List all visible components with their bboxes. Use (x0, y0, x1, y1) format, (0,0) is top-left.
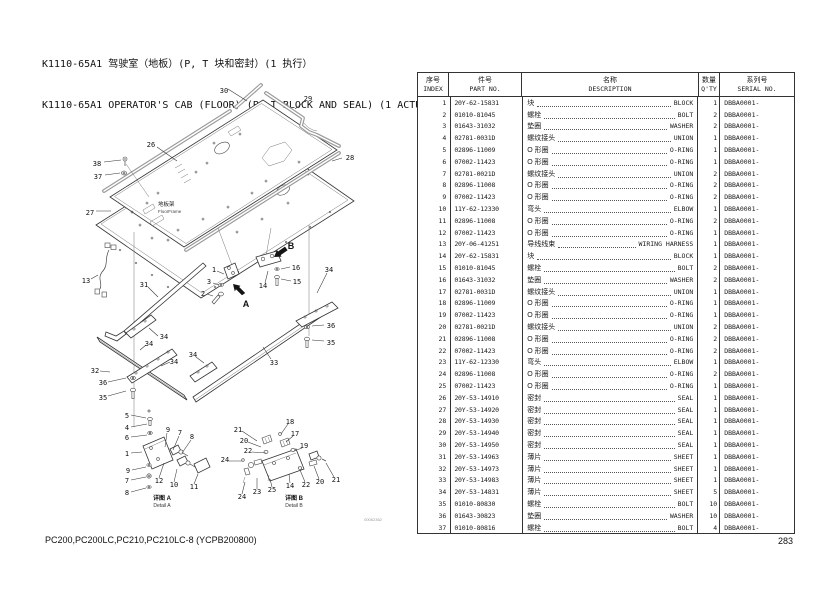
cell-description: 密封SEAL (523, 427, 698, 439)
cell-qty: 1 (698, 463, 720, 475)
cell-description: 密封SEAL (523, 392, 698, 404)
callout-35: 35 (99, 394, 107, 402)
cell-index: 32 (418, 463, 451, 475)
cell-serial: DBBA0001- (720, 262, 794, 274)
cell-qty: 1 (698, 392, 720, 404)
callout-30: 30 (220, 87, 228, 95)
parts-catalog-page: K1110-65A1 驾驶室（地板）(P, T 块和密封）(1 执行） K111… (0, 0, 840, 594)
cell-part-no: 01643-31032 (451, 274, 523, 286)
table-row: 502896-11009O 形圈O-RING1DBBA0001- (418, 144, 794, 156)
detail-b-caption-zh: 详图 B (285, 494, 304, 502)
cell-index: 3 (418, 121, 451, 133)
cell-serial: DBBA0001- (720, 156, 794, 168)
cell-index: 35 (418, 498, 451, 510)
cell-description: 密封SEAL (523, 416, 698, 428)
cell-description: 块BLOCK (523, 250, 698, 262)
cell-description: 块BLOCK (523, 97, 698, 109)
callout-14: 14 (286, 482, 294, 490)
callout-9: 9 (166, 426, 170, 434)
cell-index: 17 (418, 286, 451, 298)
callout-12: 12 (155, 477, 163, 485)
cell-qty: 5 (698, 486, 720, 498)
cell-index: 26 (418, 392, 451, 404)
cell-qty: 1 (698, 427, 720, 439)
callout-5: 5 (125, 412, 129, 420)
cell-serial: DBBA0001- (720, 451, 794, 463)
cell-qty: 2 (698, 191, 720, 203)
cell-serial: DBBA0001- (720, 392, 794, 404)
cell-description: 垫圈WASHER (523, 510, 698, 522)
cell-part-no: 20Y-53-14930 (451, 416, 523, 428)
callout-21: 21 (234, 426, 242, 434)
cell-qty: 2 (698, 321, 720, 333)
cell-index: 20 (418, 321, 451, 333)
cell-part-no: 20Y-53-14920 (451, 404, 523, 416)
cell-part-no: 01643-31032 (451, 121, 523, 133)
callout-18: 18 (286, 418, 294, 426)
callout-36: 36 (327, 322, 335, 330)
callout-15: 15 (293, 278, 301, 286)
cell-serial: DBBA0001- (720, 427, 794, 439)
cell-description: O 形圈O-RING (523, 215, 698, 227)
cell-index: 29 (418, 427, 451, 439)
cell-description: O 形圈O-RING (523, 333, 698, 345)
cell-qty: 2 (698, 180, 720, 192)
table-row: 1601643-31032垫圈WASHER2DBBA0001- (418, 274, 794, 286)
header-part-no: 件号 PART NO. (449, 73, 522, 96)
callout-22: 22 (244, 447, 252, 455)
table-row: 702781-0021D螺纹接头UNION2DBBA0001- (418, 168, 794, 180)
cell-part-no: 20Y-53-14983 (451, 475, 523, 487)
cell-part-no: 02896-11009 (451, 298, 523, 310)
cell-index: 34 (418, 486, 451, 498)
cell-qty: 1 (698, 298, 720, 310)
cell-description: O 形圈O-RING (523, 380, 698, 392)
cell-description: 弯头ELBOW (523, 357, 698, 369)
cell-qty: 1 (698, 97, 720, 109)
table-row: 1501010-81045螺栓BOLT2DBBA0001- (418, 262, 794, 274)
cell-serial: DBBA0001- (720, 132, 794, 144)
cell-part-no: 02896-11008 (451, 368, 523, 380)
cell-qty: 1 (698, 357, 720, 369)
cell-qty: 4 (698, 522, 720, 534)
cell-description: 垫圈WASHER (523, 274, 698, 286)
table-row: 3120Y-53-14963薄片SHEET1DBBA0001- (418, 451, 794, 463)
callout-25: 25 (268, 486, 276, 494)
page-number: 283 (778, 536, 793, 546)
table-row: 2002781-0021D螺纹接头UNION2DBBA0001- (418, 321, 794, 333)
cell-index: 14 (418, 250, 451, 262)
cell-serial: DBBA0001- (720, 203, 794, 215)
callout-29: 29 (304, 95, 312, 103)
table-row: 1207002-11423O 形圈O-RING1DBBA0001- (418, 227, 794, 239)
callout-8: 8 (190, 433, 194, 441)
cell-serial: DBBA0001- (720, 215, 794, 227)
callout-23: 23 (253, 488, 261, 496)
detail-b-caption-en: Detail B (285, 503, 303, 509)
callout-6: 6 (125, 434, 129, 442)
cell-part-no: 02781-0021D (451, 168, 523, 180)
cell-serial: DBBA0001- (720, 144, 794, 156)
table-row: 802896-11008O 形圈O-RING2DBBA0001- (418, 180, 794, 192)
cell-index: 22 (418, 345, 451, 357)
cell-part-no: 02896-11008 (451, 215, 523, 227)
callout-26: 26 (147, 141, 155, 149)
callout-24: 24 (238, 493, 246, 501)
cell-part-no: 20Y-53-14973 (451, 463, 523, 475)
cell-description: 薄片SHEET (523, 451, 698, 463)
cell-qty: 1 (698, 132, 720, 144)
cell-serial: DBBA0001- (720, 463, 794, 475)
cell-part-no: 02781-0031D (451, 286, 523, 298)
cell-description: 螺纹接头UNION (523, 286, 698, 298)
cell-qty: 1 (698, 416, 720, 428)
cell-description: O 形圈O-RING (523, 298, 698, 310)
cell-index: 24 (418, 368, 451, 380)
wiring-harness (95, 243, 116, 297)
floor-frame-label-en: FloorFrame (158, 209, 182, 214)
callout-7: 7 (178, 429, 182, 437)
cell-part-no: 07002-11423 (451, 156, 523, 168)
table-row: 3320Y-53-14983薄片SHEET1DBBA0001- (418, 475, 794, 487)
callout-34: 34 (170, 358, 178, 366)
table-row: 3220Y-53-14973薄片SHEET1DBBA0001- (418, 463, 794, 475)
cell-part-no: 01010-81045 (451, 109, 523, 121)
cell-serial: DBBA0001- (720, 498, 794, 510)
parts-table-header: 序号 INDEX 件号 PART NO. 名称 DESCRIPTION 数量 Q… (418, 73, 794, 97)
header-description: 名称 DESCRIPTION (522, 73, 699, 96)
callout-11: 11 (190, 483, 198, 491)
cell-serial: DBBA0001- (720, 510, 794, 522)
cell-serial: DBBA0001- (720, 191, 794, 203)
cell-qty: 1 (698, 203, 720, 215)
cell-index: 25 (418, 380, 451, 392)
cell-part-no: 02896-11008 (451, 333, 523, 345)
callout-20: 20 (316, 478, 324, 486)
cell-serial: DBBA0001- (720, 109, 794, 121)
cell-part-no: 20Y-62-15831 (451, 250, 523, 262)
callout-21: 21 (332, 476, 340, 484)
callout-31: 31 (140, 281, 148, 289)
cell-serial: DBBA0001- (720, 97, 794, 109)
callout-3: 3 (207, 278, 211, 286)
cell-index: 7 (418, 168, 451, 180)
callout-14: 14 (259, 282, 267, 290)
cell-serial: DBBA0001- (720, 475, 794, 487)
table-row: 2207002-11423O 形圈O-RING2DBBA0001- (418, 345, 794, 357)
cell-serial: DBBA0001- (720, 522, 794, 534)
cell-description: 螺栓BOLT (523, 522, 698, 534)
cell-part-no: 07002-11423 (451, 309, 523, 321)
cell-description: 螺纹接头UNION (523, 321, 698, 333)
callout-34: 34 (145, 340, 153, 348)
callout-4: 4 (125, 424, 129, 432)
cell-description: O 形圈O-RING (523, 144, 698, 156)
cell-index: 15 (418, 262, 451, 274)
table-row: 3420Y-53-14831薄片SHEET5DBBA0001- (418, 486, 794, 498)
table-row: 607002-11423O 形圈O-RING1DBBA0001- (418, 156, 794, 168)
callout-22: 22 (302, 481, 310, 489)
cell-description: 螺纹接头UNION (523, 132, 698, 144)
cell-serial: DBBA0001- (720, 168, 794, 180)
cell-description: O 形圈O-RING (523, 227, 698, 239)
cell-description: 垫圈WASHER (523, 121, 698, 133)
callout-34: 34 (189, 351, 197, 359)
table-row: 2402896-11008O 形圈O-RING2DBBA0001- (418, 368, 794, 380)
cell-description: O 形圈O-RING (523, 345, 698, 357)
cell-qty: 1 (698, 380, 720, 392)
cell-part-no: 02781-0021D (451, 321, 523, 333)
cell-index: 30 (418, 439, 451, 451)
cell-qty: 2 (698, 368, 720, 380)
table-row: 3701010-80816螺栓BOLT4DBBA0001- (418, 522, 794, 534)
callout-35: 35 (327, 339, 335, 347)
table-row: 2102896-11008O 形圈O-RING2DBBA0001- (418, 333, 794, 345)
cell-part-no: 20Y-53-14831 (451, 486, 523, 498)
cell-index: 9 (418, 191, 451, 203)
table-row: 2620Y-53-14910密封SEAL1DBBA0001- (418, 392, 794, 404)
table-row: 2507002-11423O 形圈O-RING1DBBA0001- (418, 380, 794, 392)
cell-description: 螺栓BOLT (523, 262, 698, 274)
cell-index: 36 (418, 510, 451, 522)
detail-a-caption-en: Detail A (153, 503, 171, 509)
cell-serial: DBBA0001- (720, 309, 794, 321)
callout-10: 10 (170, 481, 178, 489)
callout-32: 32 (91, 367, 99, 375)
table-row: 907002-11423O 形圈O-RING2DBBA0001- (418, 191, 794, 203)
table-row: 201010-81045螺栓BOLT2DBBA0001- (418, 109, 794, 121)
exploded-parts-diagram: 地板架 FloorFrame 详图 A Detail A 详图 B Detail… (0, 0, 420, 594)
cell-part-no: 07002-11423 (451, 380, 523, 392)
floor-frame-label-zh: 地板架 (158, 200, 175, 208)
table-row: 2920Y-53-14940密封SEAL1DBBA0001- (418, 427, 794, 439)
cell-description: 密封SEAL (523, 404, 698, 416)
callout-9: 9 (126, 467, 130, 475)
cell-serial: DBBA0001- (720, 250, 794, 262)
applicable-models: PC200,PC200LC,PC210,PC210LC-8 (YCPB20080… (45, 535, 257, 545)
callout-17: 17 (291, 430, 299, 438)
cell-qty: 1 (698, 239, 720, 251)
cell-serial: DBBA0001- (720, 439, 794, 451)
cell-part-no: 20Y-53-14910 (451, 392, 523, 404)
cell-index: 11 (418, 215, 451, 227)
cell-index: 28 (418, 416, 451, 428)
cell-serial: DBBA0001- (720, 345, 794, 357)
detail-a-caption-zh: 详图 A (153, 494, 172, 502)
cell-description: 导线线束WIRING HARNESS (523, 239, 698, 251)
rail-31 (105, 263, 206, 341)
cell-index: 19 (418, 309, 451, 321)
cell-part-no: 01010-80830 (451, 498, 523, 510)
parts-table: 序号 INDEX 件号 PART NO. 名称 DESCRIPTION 数量 Q… (417, 72, 795, 534)
cell-part-no: 02781-0031D (451, 132, 523, 144)
cell-index: 27 (418, 404, 451, 416)
cell-qty: 2 (698, 121, 720, 133)
cell-qty: 2 (698, 262, 720, 274)
callout-24: 24 (221, 456, 229, 464)
cell-description: O 形圈O-RING (523, 191, 698, 203)
cell-part-no: 07002-11423 (451, 227, 523, 239)
cell-qty: 1 (698, 451, 720, 463)
cell-qty: 2 (698, 274, 720, 286)
table-row: 1320Y-06-41251导线线束WIRING HARNESS1DBBA000… (418, 239, 794, 251)
view-arrow-a (233, 284, 245, 295)
cell-index: 8 (418, 180, 451, 192)
cell-part-no: 20Y-53-14963 (451, 451, 523, 463)
cell-part-no: 01010-80816 (451, 522, 523, 534)
cell-serial: DBBA0001- (720, 416, 794, 428)
table-row: 2820Y-53-14930密封SEAL1DBBA0001- (418, 416, 794, 428)
cell-serial: DBBA0001- (720, 333, 794, 345)
drawing-number: 00062362 (364, 517, 383, 522)
cell-description: 密封SEAL (523, 439, 698, 451)
callout-2: 2 (201, 290, 205, 298)
cell-index: 5 (418, 144, 451, 156)
table-row: 2311Y-62-12330弯头ELBOW1DBBA0001- (418, 357, 794, 369)
cell-qty: 1 (698, 286, 720, 298)
cell-part-no: 11Y-62-12330 (451, 203, 523, 215)
cell-part-no: 01010-81045 (451, 262, 523, 274)
cell-description: 薄片SHEET (523, 475, 698, 487)
cell-qty: 2 (698, 168, 720, 180)
callout-20: 20 (240, 437, 248, 445)
cell-qty: 10 (698, 510, 720, 522)
cell-description: O 形圈O-RING (523, 309, 698, 321)
callout-36: 36 (99, 379, 107, 387)
header-serial-no: 系列号 SERIAL NO. (720, 73, 794, 96)
cell-qty: 2 (698, 215, 720, 227)
callout-13: 13 (82, 277, 90, 285)
cell-qty: 1 (698, 309, 720, 321)
callout-34: 34 (160, 333, 168, 341)
cell-description: 薄片SHEET (523, 463, 698, 475)
table-row: 1702781-0031D螺纹接头UNION1DBBA0001- (418, 286, 794, 298)
cell-part-no: 02896-11009 (451, 144, 523, 156)
cell-serial: DBBA0001- (720, 321, 794, 333)
cell-serial: DBBA0001- (720, 368, 794, 380)
cell-qty: 1 (698, 227, 720, 239)
cell-index: 33 (418, 475, 451, 487)
cell-qty: 10 (698, 498, 720, 510)
cell-part-no: 11Y-62-12330 (451, 357, 523, 369)
table-row: 2720Y-53-14920密封SEAL1DBBA0001- (418, 404, 794, 416)
cell-serial: DBBA0001- (720, 121, 794, 133)
cell-index: 16 (418, 274, 451, 286)
callout-B: B (288, 241, 295, 251)
callout-A: A (243, 299, 250, 309)
cell-description: 薄片SHEET (523, 486, 698, 498)
table-row: 402781-0031D螺纹接头UNION1DBBA0001- (418, 132, 794, 144)
callout-19: 19 (300, 442, 308, 450)
cell-serial: DBBA0001- (720, 239, 794, 251)
callout-34: 34 (325, 266, 333, 274)
cell-index: 18 (418, 298, 451, 310)
callout-7: 7 (125, 477, 129, 485)
cell-qty: 1 (698, 156, 720, 168)
callout-37: 37 (94, 173, 102, 181)
cell-serial: DBBA0001- (720, 180, 794, 192)
cell-description: 螺栓BOLT (523, 498, 698, 510)
cell-part-no: 20Y-53-14950 (451, 439, 523, 451)
callout-1: 1 (125, 450, 129, 458)
cell-part-no: 07002-11423 (451, 345, 523, 357)
cell-description: O 形圈O-RING (523, 368, 698, 380)
cell-serial: DBBA0001- (720, 227, 794, 239)
cell-index: 4 (418, 132, 451, 144)
cell-description: 螺纹接头UNION (523, 168, 698, 180)
cell-index: 31 (418, 451, 451, 463)
cell-part-no: 20Y-53-14940 (451, 427, 523, 439)
cell-description: 弯头ELBOW (523, 203, 698, 215)
cell-index: 1 (418, 97, 451, 109)
callout-8: 8 (125, 489, 129, 497)
cell-index: 37 (418, 522, 451, 534)
cell-qty: 1 (698, 404, 720, 416)
cell-index: 23 (418, 357, 451, 369)
cell-description: 螺栓BOLT (523, 109, 698, 121)
callout-28: 28 (346, 154, 354, 162)
cell-qty: 1 (698, 475, 720, 487)
cell-serial: DBBA0001- (720, 380, 794, 392)
cell-serial: DBBA0001- (720, 274, 794, 286)
callout-16: 16 (292, 264, 300, 272)
cell-qty: 1 (698, 250, 720, 262)
cell-serial: DBBA0001- (720, 298, 794, 310)
detail-b-group (242, 433, 326, 483)
cell-qty: 1 (698, 439, 720, 451)
cell-part-no: 01643-30823 (451, 510, 523, 522)
table-row: 1802896-11009O 形圈O-RING1DBBA0001- (418, 298, 794, 310)
callout-38: 38 (93, 160, 101, 168)
cell-description: O 形圈O-RING (523, 156, 698, 168)
parts-table-body: 120Y-62-15831块BLOCK1DBBA0001-201010-8104… (418, 97, 794, 533)
cell-serial: DBBA0001- (720, 357, 794, 369)
table-row: 1011Y-62-12330弯头ELBOW1DBBA0001- (418, 203, 794, 215)
cell-serial: DBBA0001- (720, 486, 794, 498)
cell-serial: DBBA0001- (720, 404, 794, 416)
cell-part-no: 02896-11008 (451, 180, 523, 192)
table-row: 3501010-80830螺栓BOLT10DBBA0001- (418, 498, 794, 510)
table-row: 1420Y-62-15831块BLOCK1DBBA0001- (418, 250, 794, 262)
cell-index: 2 (418, 109, 451, 121)
cell-qty: 2 (698, 109, 720, 121)
cell-part-no: 20Y-06-41251 (451, 239, 523, 251)
cell-qty: 1 (698, 144, 720, 156)
table-row: 3020Y-53-14950密封SEAL1DBBA0001- (418, 439, 794, 451)
table-row: 301643-31032垫圈WASHER2DBBA0001- (418, 121, 794, 133)
table-row: 120Y-62-15831块BLOCK1DBBA0001- (418, 97, 794, 109)
callout-27: 27 (86, 209, 94, 217)
cell-description: O 形圈O-RING (523, 180, 698, 192)
cell-index: 6 (418, 156, 451, 168)
cell-index: 21 (418, 333, 451, 345)
cell-index: 13 (418, 239, 451, 251)
cell-part-no: 07002-11423 (451, 191, 523, 203)
table-row: 3601643-30823垫圈WASHER10DBBA0001- (418, 510, 794, 522)
cell-index: 12 (418, 227, 451, 239)
detail-a-group (143, 410, 210, 489)
cell-qty: 2 (698, 333, 720, 345)
header-index: 序号 INDEX (418, 73, 449, 96)
callout-33: 33 (270, 359, 278, 367)
cell-part-no: 20Y-62-15831 (451, 97, 523, 109)
table-row: 1102896-11008O 形圈O-RING2DBBA0001- (418, 215, 794, 227)
cell-qty: 2 (698, 345, 720, 357)
callout-1: 1 (212, 266, 216, 274)
table-row: 1907002-11423O 形圈O-RING1DBBA0001- (418, 309, 794, 321)
cell-index: 10 (418, 203, 451, 215)
header-qty: 数量 Q'TY (699, 73, 720, 96)
